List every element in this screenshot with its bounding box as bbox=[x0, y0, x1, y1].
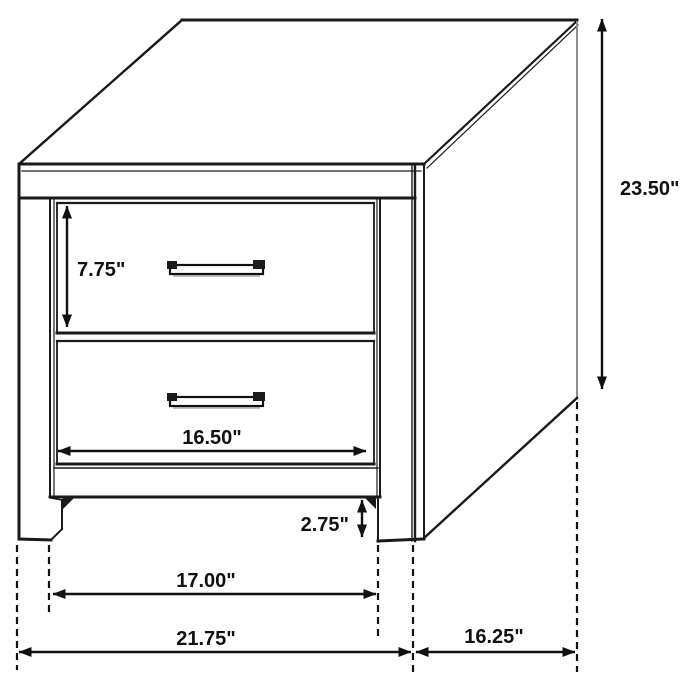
front-left-leg bbox=[19, 498, 74, 540]
cabinet-top-face bbox=[19, 20, 578, 171]
dimension-total-height: 23.50" bbox=[602, 19, 680, 389]
cabinet-front-frame bbox=[19, 164, 415, 541]
furniture-dimension-diagram: 7.75" 23.50" 16.50" 2.75" 17.00" 21.75" … bbox=[0, 0, 700, 700]
dimension-drawer-front-height: 7.75" bbox=[67, 206, 125, 327]
total-height-label: 23.50" bbox=[620, 178, 680, 200]
dimension-depth: 16.25" bbox=[416, 626, 575, 652]
dimension-drawer-width: 16.50" bbox=[58, 427, 366, 451]
dimension-leg-clearance: 2.75" bbox=[301, 500, 362, 537]
dimension-inner-width: 17.00" bbox=[53, 570, 376, 594]
dimension-overall-width: 21.75" bbox=[19, 628, 411, 652]
bottom-drawer-handle-icon[interactable] bbox=[167, 392, 265, 408]
drawer-front-height-label: 7.75" bbox=[77, 259, 125, 281]
diagram-canvas: 7.75" 23.50" 16.50" 2.75" 17.00" 21.75" … bbox=[0, 0, 700, 700]
overall-width-label: 21.75" bbox=[176, 628, 236, 650]
drawer-width-label: 16.50" bbox=[182, 427, 242, 449]
inner-width-label: 17.00" bbox=[176, 570, 236, 592]
leg-clearance-label: 2.75" bbox=[301, 514, 349, 536]
depth-label: 16.25" bbox=[464, 626, 524, 648]
top-drawer-handle-icon[interactable] bbox=[167, 260, 265, 276]
